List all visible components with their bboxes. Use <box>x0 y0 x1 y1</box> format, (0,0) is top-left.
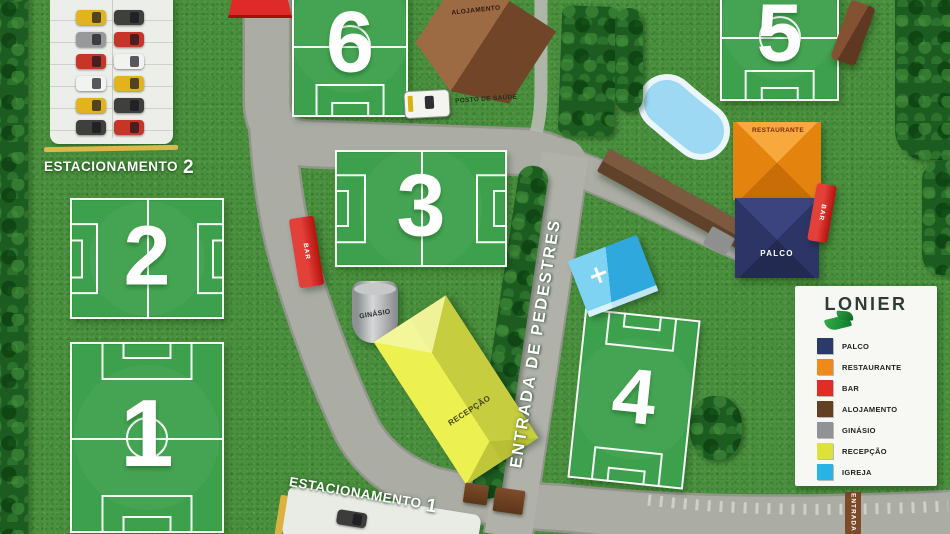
label-entrada: ENTRADA <box>850 492 857 532</box>
soccer-field-3: 3 <box>335 150 507 267</box>
parked-car <box>76 76 106 91</box>
leaf-logo-icon <box>824 314 852 332</box>
legend-item-bar: BAR <box>817 380 859 396</box>
legend-swatch-restaurante <box>817 359 833 375</box>
tree-strip-right-mid <box>922 160 950 275</box>
tree-strip-right-top <box>895 0 950 160</box>
field-number: 1 <box>72 386 222 482</box>
pool <box>667 103 701 131</box>
label-palco: PALCO <box>735 249 819 258</box>
resort-site-map: 6 5 3 2 1 4 BAR BAR GINÁSIO <box>0 0 950 534</box>
tree-strip-left <box>0 0 28 534</box>
soccer-field-1: 1 <box>70 342 224 533</box>
parked-car <box>76 32 106 47</box>
legend-swatch-igreja <box>817 464 833 480</box>
legend-swatch-bar <box>817 380 833 396</box>
bar-label: BAR <box>302 243 312 261</box>
parked-car <box>76 98 106 113</box>
legend-item-igreja: IGREJA <box>817 464 872 480</box>
health-post-van <box>403 89 450 119</box>
legend-title: LONIER <box>795 286 937 315</box>
legend-panel: LONIER PALCO RESTAURANTE BAR ALOJAMENTO … <box>795 286 937 486</box>
red-roof-structure <box>228 0 292 18</box>
bar-label: BAR <box>817 204 827 222</box>
legend-swatch-alojamento <box>817 401 833 417</box>
ginasio-label: GINÁSIO <box>352 307 399 321</box>
cross-icon <box>588 265 609 286</box>
legend-item-alojamento: ALOJAMENTO <box>817 401 897 417</box>
parked-car <box>114 10 144 25</box>
bush-cluster-field4 <box>690 396 742 460</box>
field-number: 5 <box>722 0 837 75</box>
palco-building <box>735 198 819 278</box>
parked-car <box>76 54 106 69</box>
soccer-field-6: 6 <box>292 0 408 117</box>
entrada-ribbon: ENTRADA <box>845 492 861 534</box>
entrance-gate-post <box>463 482 490 505</box>
field-number: 6 <box>294 0 406 85</box>
legend-item-restaurante: RESTAURANTE <box>817 359 901 375</box>
parked-car <box>114 76 144 91</box>
legend-swatch-ginasio <box>817 422 833 438</box>
field-number: 3 <box>337 161 505 249</box>
parked-car <box>114 120 144 135</box>
legend-swatch-palco <box>817 338 833 354</box>
label-restaurante: RESTAURANTE <box>736 127 820 134</box>
parking-lot-2 <box>50 0 173 144</box>
soccer-field-2: 2 <box>70 198 224 319</box>
label-estacionamento-2: ESTACIONAMENTO2 <box>44 157 194 179</box>
field-number: 4 <box>575 351 695 440</box>
lot-number: 2 <box>183 157 194 178</box>
parked-car <box>76 10 106 25</box>
legend-swatch-recepcao <box>817 443 833 459</box>
legend-item-ginasio: GINÁSIO <box>817 422 876 438</box>
parked-car <box>114 32 144 47</box>
parking2-cars <box>50 0 173 144</box>
soccer-field-5: 5 <box>720 0 839 101</box>
recepcao-label: RECEPÇÃO <box>431 384 508 438</box>
soccer-field-4: 4 <box>567 308 700 489</box>
tree-column-top <box>615 8 643 112</box>
hedge-top <box>558 5 619 137</box>
parked-car <box>336 509 368 529</box>
parked-car <box>76 120 106 135</box>
legend-item-palco: PALCO <box>817 338 869 354</box>
parked-car <box>114 98 144 113</box>
field-number: 2 <box>72 213 222 297</box>
parked-car <box>114 54 144 69</box>
legend-item-recepcao: RECEPÇÃO <box>817 443 887 459</box>
